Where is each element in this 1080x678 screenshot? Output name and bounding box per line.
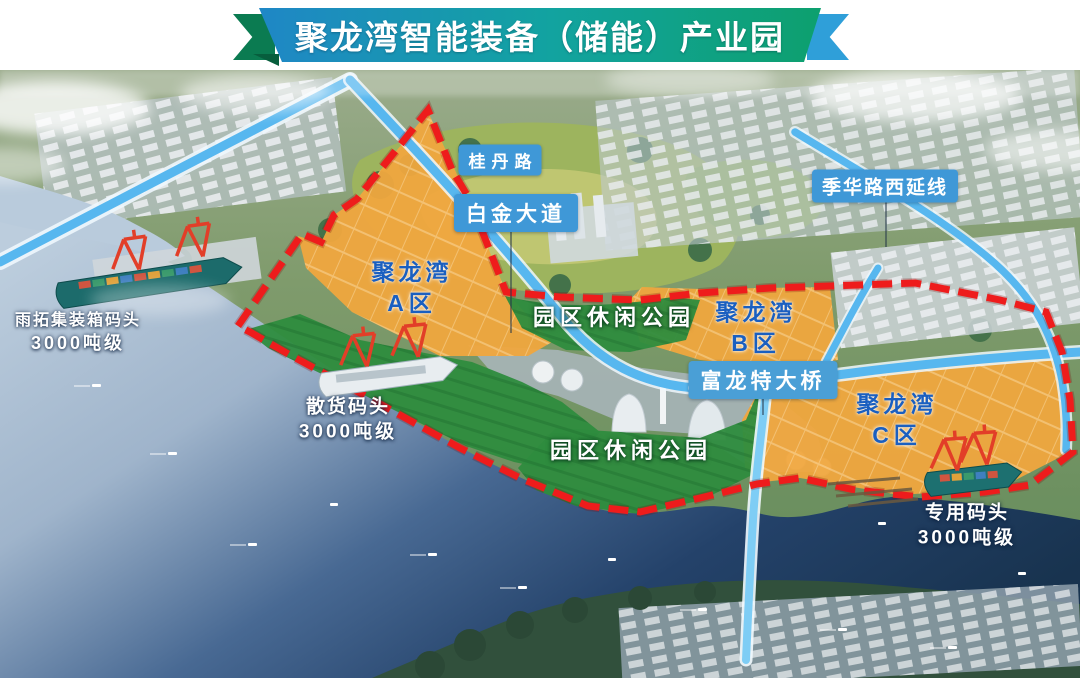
dock-container-name: 雨拓集装箱码头 [15,311,141,332]
dock-dedicated-capacity: 3000吨级 [918,526,1016,551]
zone-label-c: 聚龙湾 C区 [857,389,938,451]
zone-a-name: 聚龙湾 [372,257,453,288]
page-title: 聚龙湾智能装备（储能）产业园 [295,11,785,59]
ribbon-bar: 聚龙湾智能装备（储能）产业园 [259,8,821,62]
road-label-jihua: 季华路西延线 [812,170,958,203]
park-label-central: 园区休闲公园 [550,433,712,465]
zone-label-a: 聚龙湾 A区 [372,257,453,319]
zone-c-district: C区 [857,420,938,451]
park-label-upper: 园区休闲公园 [533,300,695,332]
page: 聚龙湾智能装备（储能）产业园 [0,0,1080,678]
zone-b-name: 聚龙湾 [716,297,797,328]
dock-container-capacity: 3000吨级 [15,332,141,355]
aerial-map: 桂丹路 白金大道 季华路西延线 富龙特大桥 聚龙湾 A区 聚龙湾 B区 聚龙湾 … [0,70,1080,678]
top-haze [0,70,1080,96]
road-label-baijin: 白金大道 [454,194,578,232]
road-label-fulong-bridge: 富龙特大桥 [689,361,838,399]
dock-bulk-name: 散货码头 [299,395,397,420]
dock-dedicated-name: 专用码头 [918,501,1016,526]
dock-label-container: 雨拓集装箱码头 3000吨级 [15,311,141,355]
zone-a-district: A区 [372,288,453,319]
dock-label-bulk: 散货码头 3000吨级 [299,395,397,444]
zone-label-b: 聚龙湾 B区 [716,297,797,359]
title-ribbon: 聚龙湾智能装备（储能）产业园 [247,6,833,62]
dock-bulk-capacity: 3000吨级 [299,420,397,445]
dock-label-dedicated: 专用码头 3000吨级 [918,501,1016,550]
zone-b-district: B区 [716,328,797,359]
zone-c-name: 聚龙湾 [857,389,938,420]
road-label-guidan: 桂丹路 [459,145,542,176]
